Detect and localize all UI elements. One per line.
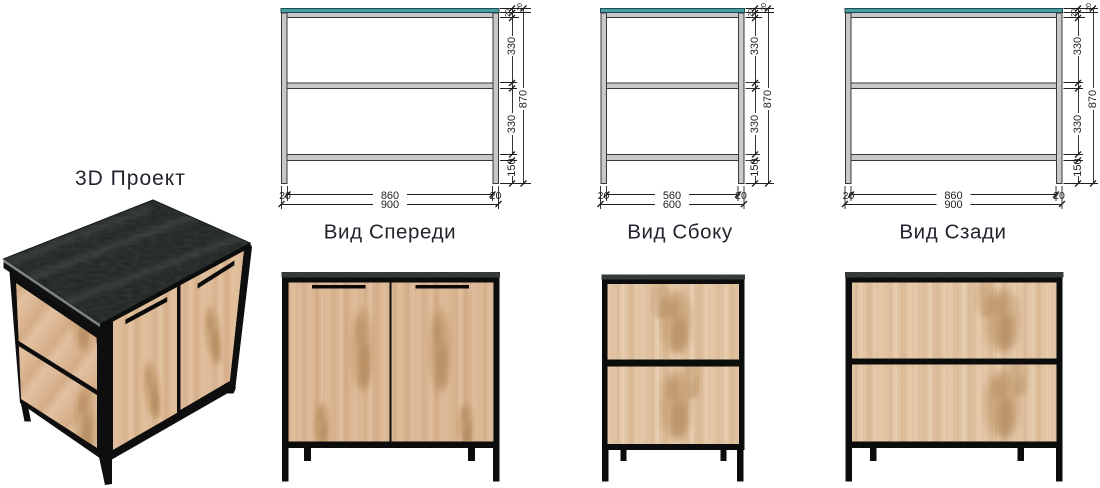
svg-text:330: 330 [506, 37, 518, 55]
svg-text:150: 150 [749, 158, 761, 176]
svg-text:20: 20 [517, 3, 524, 11]
svg-text:870: 870 [1087, 90, 1099, 108]
svg-text:600: 600 [663, 199, 681, 211]
svg-text:20: 20 [505, 9, 512, 17]
svg-text:330: 330 [749, 115, 761, 133]
svg-text:330: 330 [749, 37, 761, 55]
svg-text:20: 20 [761, 3, 768, 11]
svg-text:330: 330 [1072, 115, 1084, 133]
svg-text:Вид Спереди: Вид Спереди [324, 221, 456, 244]
svg-text:20: 20 [1071, 9, 1078, 17]
svg-text:900: 900 [381, 199, 399, 211]
svg-text:Вид Сзади: Вид Сзади [899, 221, 1006, 244]
svg-text:20: 20 [598, 190, 610, 202]
svg-text:870: 870 [762, 90, 774, 108]
svg-text:3D Проект: 3D Проект [75, 167, 186, 190]
svg-text:20: 20 [1086, 3, 1093, 11]
svg-text:20: 20 [490, 190, 502, 202]
svg-text:900: 900 [944, 199, 962, 211]
svg-text:20: 20 [735, 190, 747, 202]
svg-text:20: 20 [279, 190, 291, 202]
svg-text:330: 330 [1072, 37, 1084, 55]
svg-text:20: 20 [748, 9, 755, 17]
svg-text:150: 150 [1072, 158, 1084, 176]
svg-text:870: 870 [517, 90, 529, 108]
svg-text:Вид Сбоку: Вид Сбоку [627, 221, 733, 244]
svg-text:20: 20 [1053, 190, 1065, 202]
svg-text:150: 150 [506, 158, 518, 176]
svg-text:20: 20 [843, 190, 855, 202]
svg-text:330: 330 [506, 115, 518, 133]
